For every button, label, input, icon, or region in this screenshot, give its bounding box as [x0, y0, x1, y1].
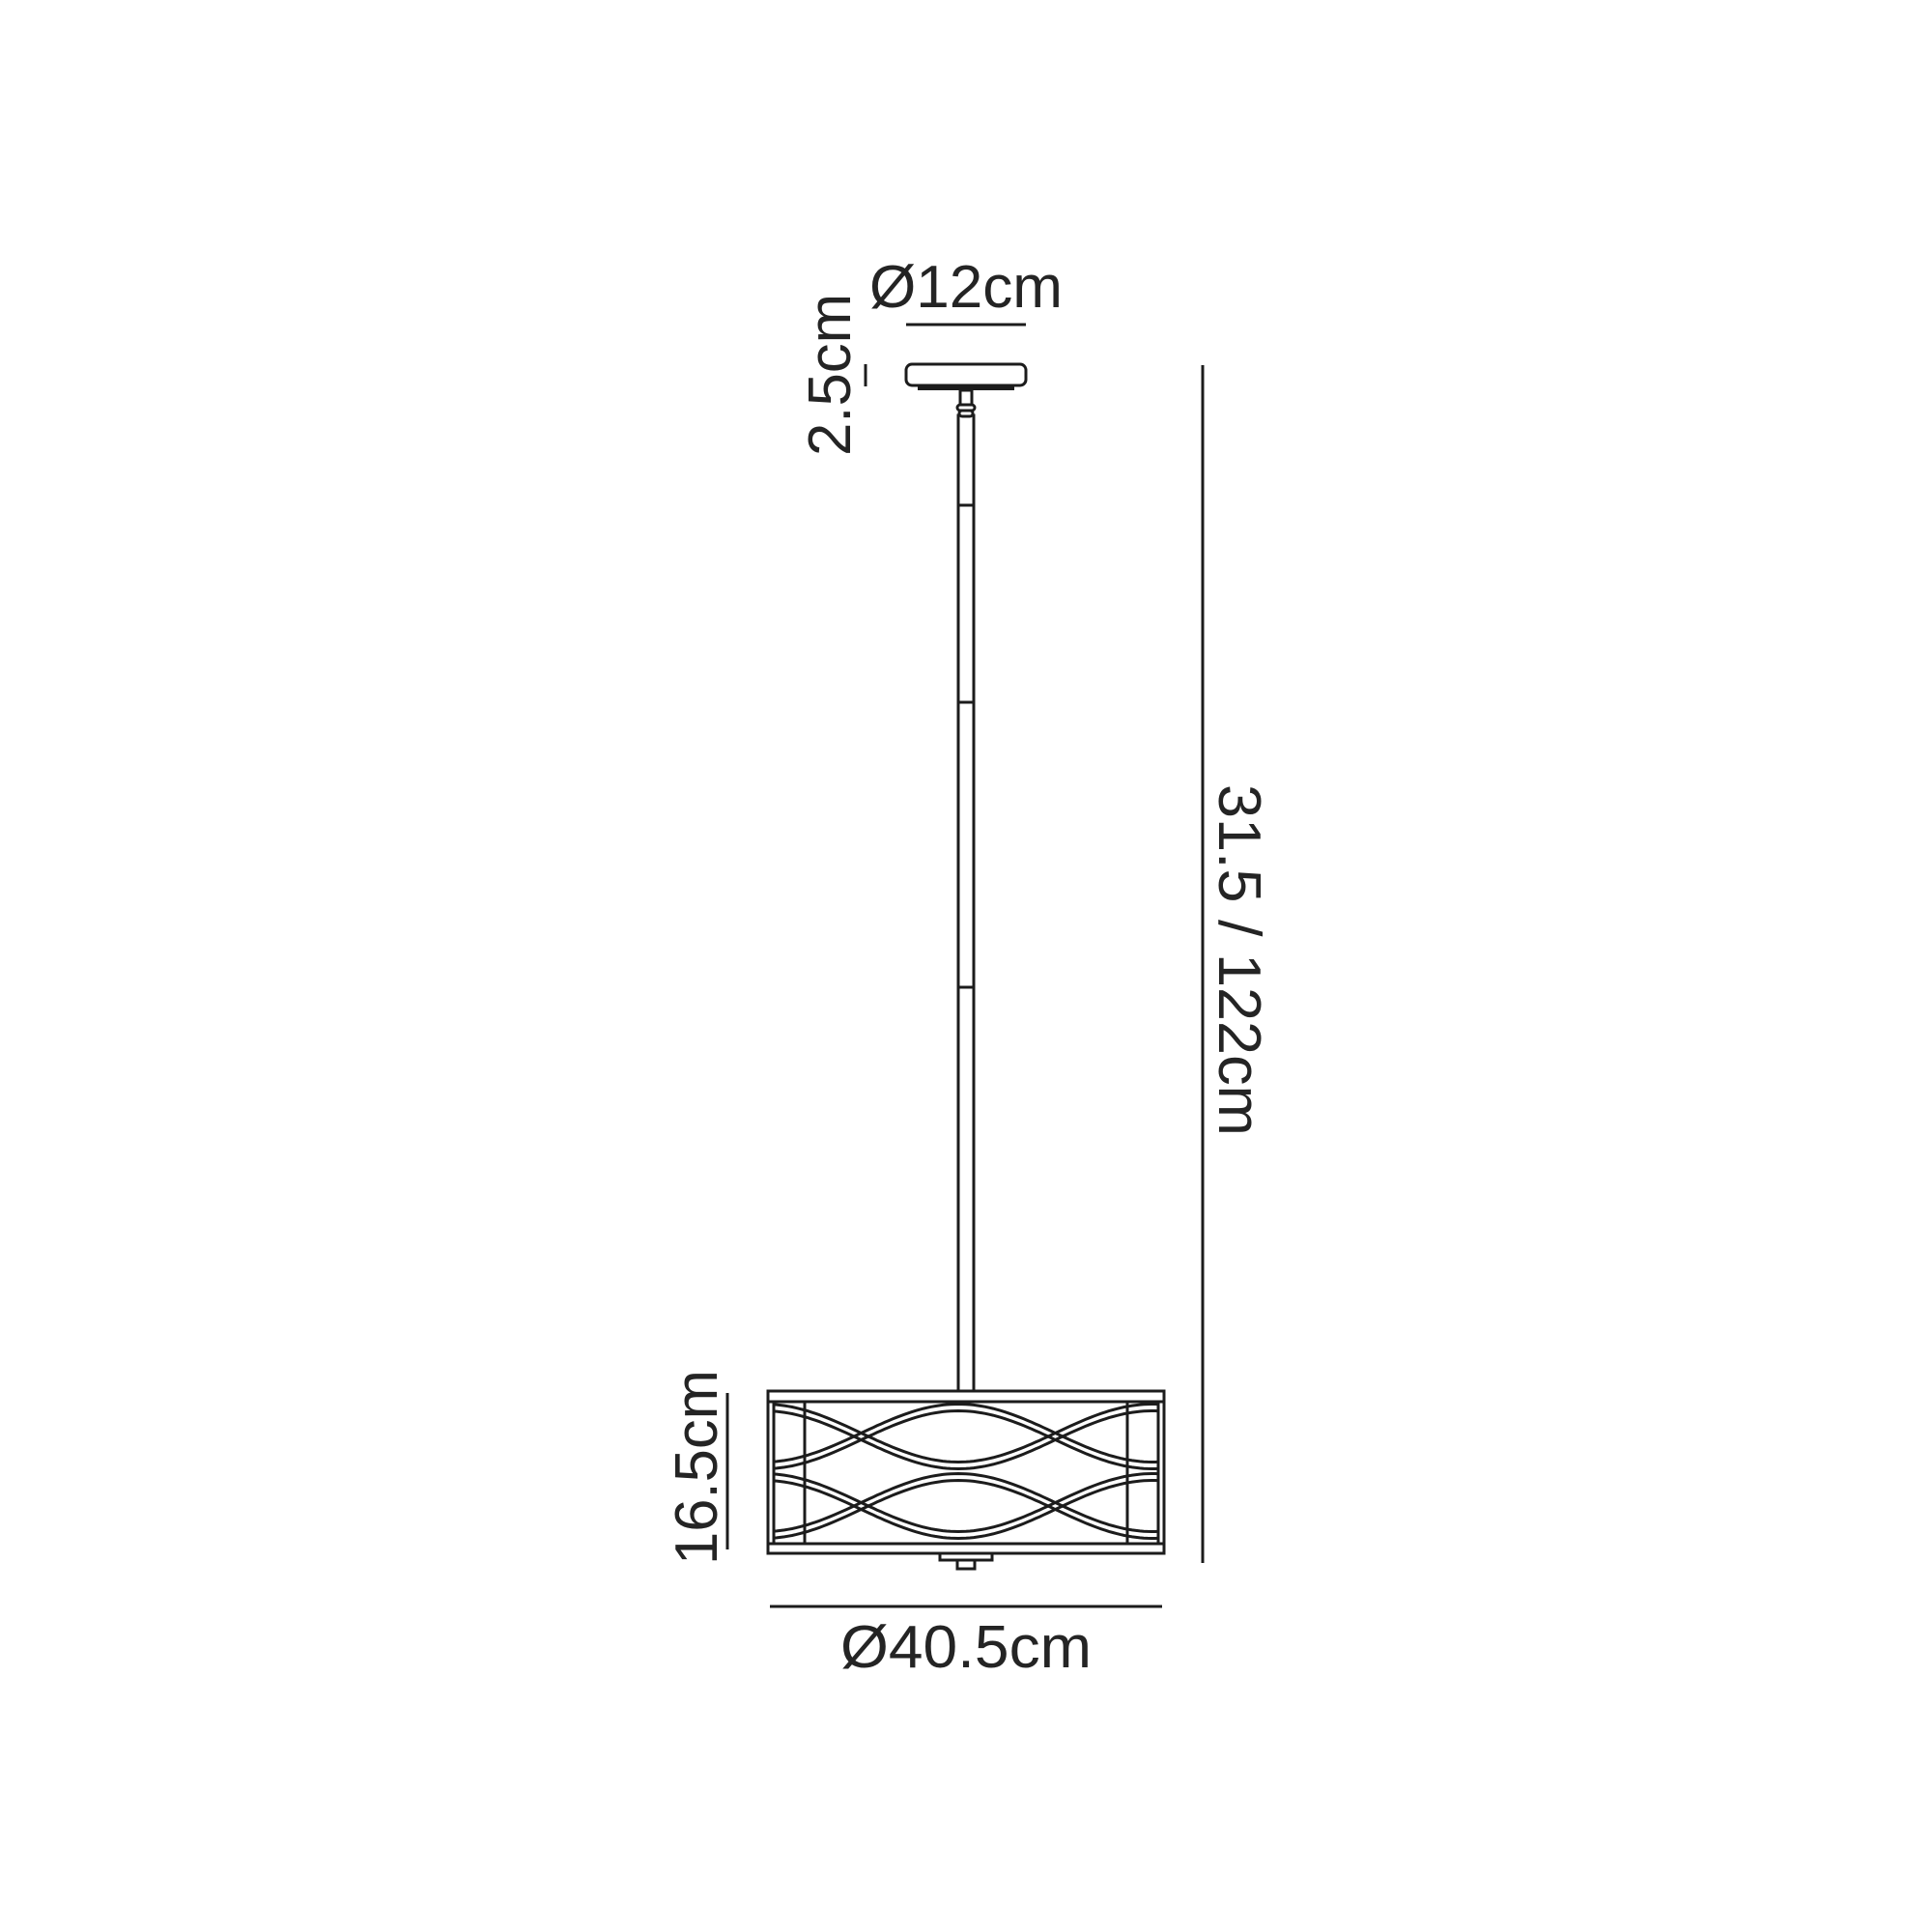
canopy-stem-neck [960, 390, 972, 405]
label-shade-height: 16.5cm [664, 1370, 730, 1565]
canopy-body [906, 364, 1026, 385]
label-canopy-height: 2.5cm [797, 294, 864, 456]
diagram-canvas: Ø12cm 2.5cm 31.5 / 122cm 16.5cm Ø40.5cm [0, 0, 1932, 1932]
label-shade-diameter: Ø40.5cm [840, 1614, 1092, 1681]
suspension-rod [958, 415, 974, 1393]
pendant-light-technical-drawing: Ø12cm 2.5cm 31.5 / 122cm 16.5cm Ø40.5cm [0, 0, 1932, 1932]
stem-bead-lower [959, 411, 973, 416]
ceiling-canopy [906, 364, 1026, 416]
finial-knob [957, 1560, 975, 1569]
label-canopy-diameter: Ø12cm [869, 254, 1063, 321]
label-drop-height: 31.5 / 122cm [1206, 784, 1272, 1136]
drum-shade [768, 1391, 1164, 1569]
rod-body [958, 415, 974, 1393]
